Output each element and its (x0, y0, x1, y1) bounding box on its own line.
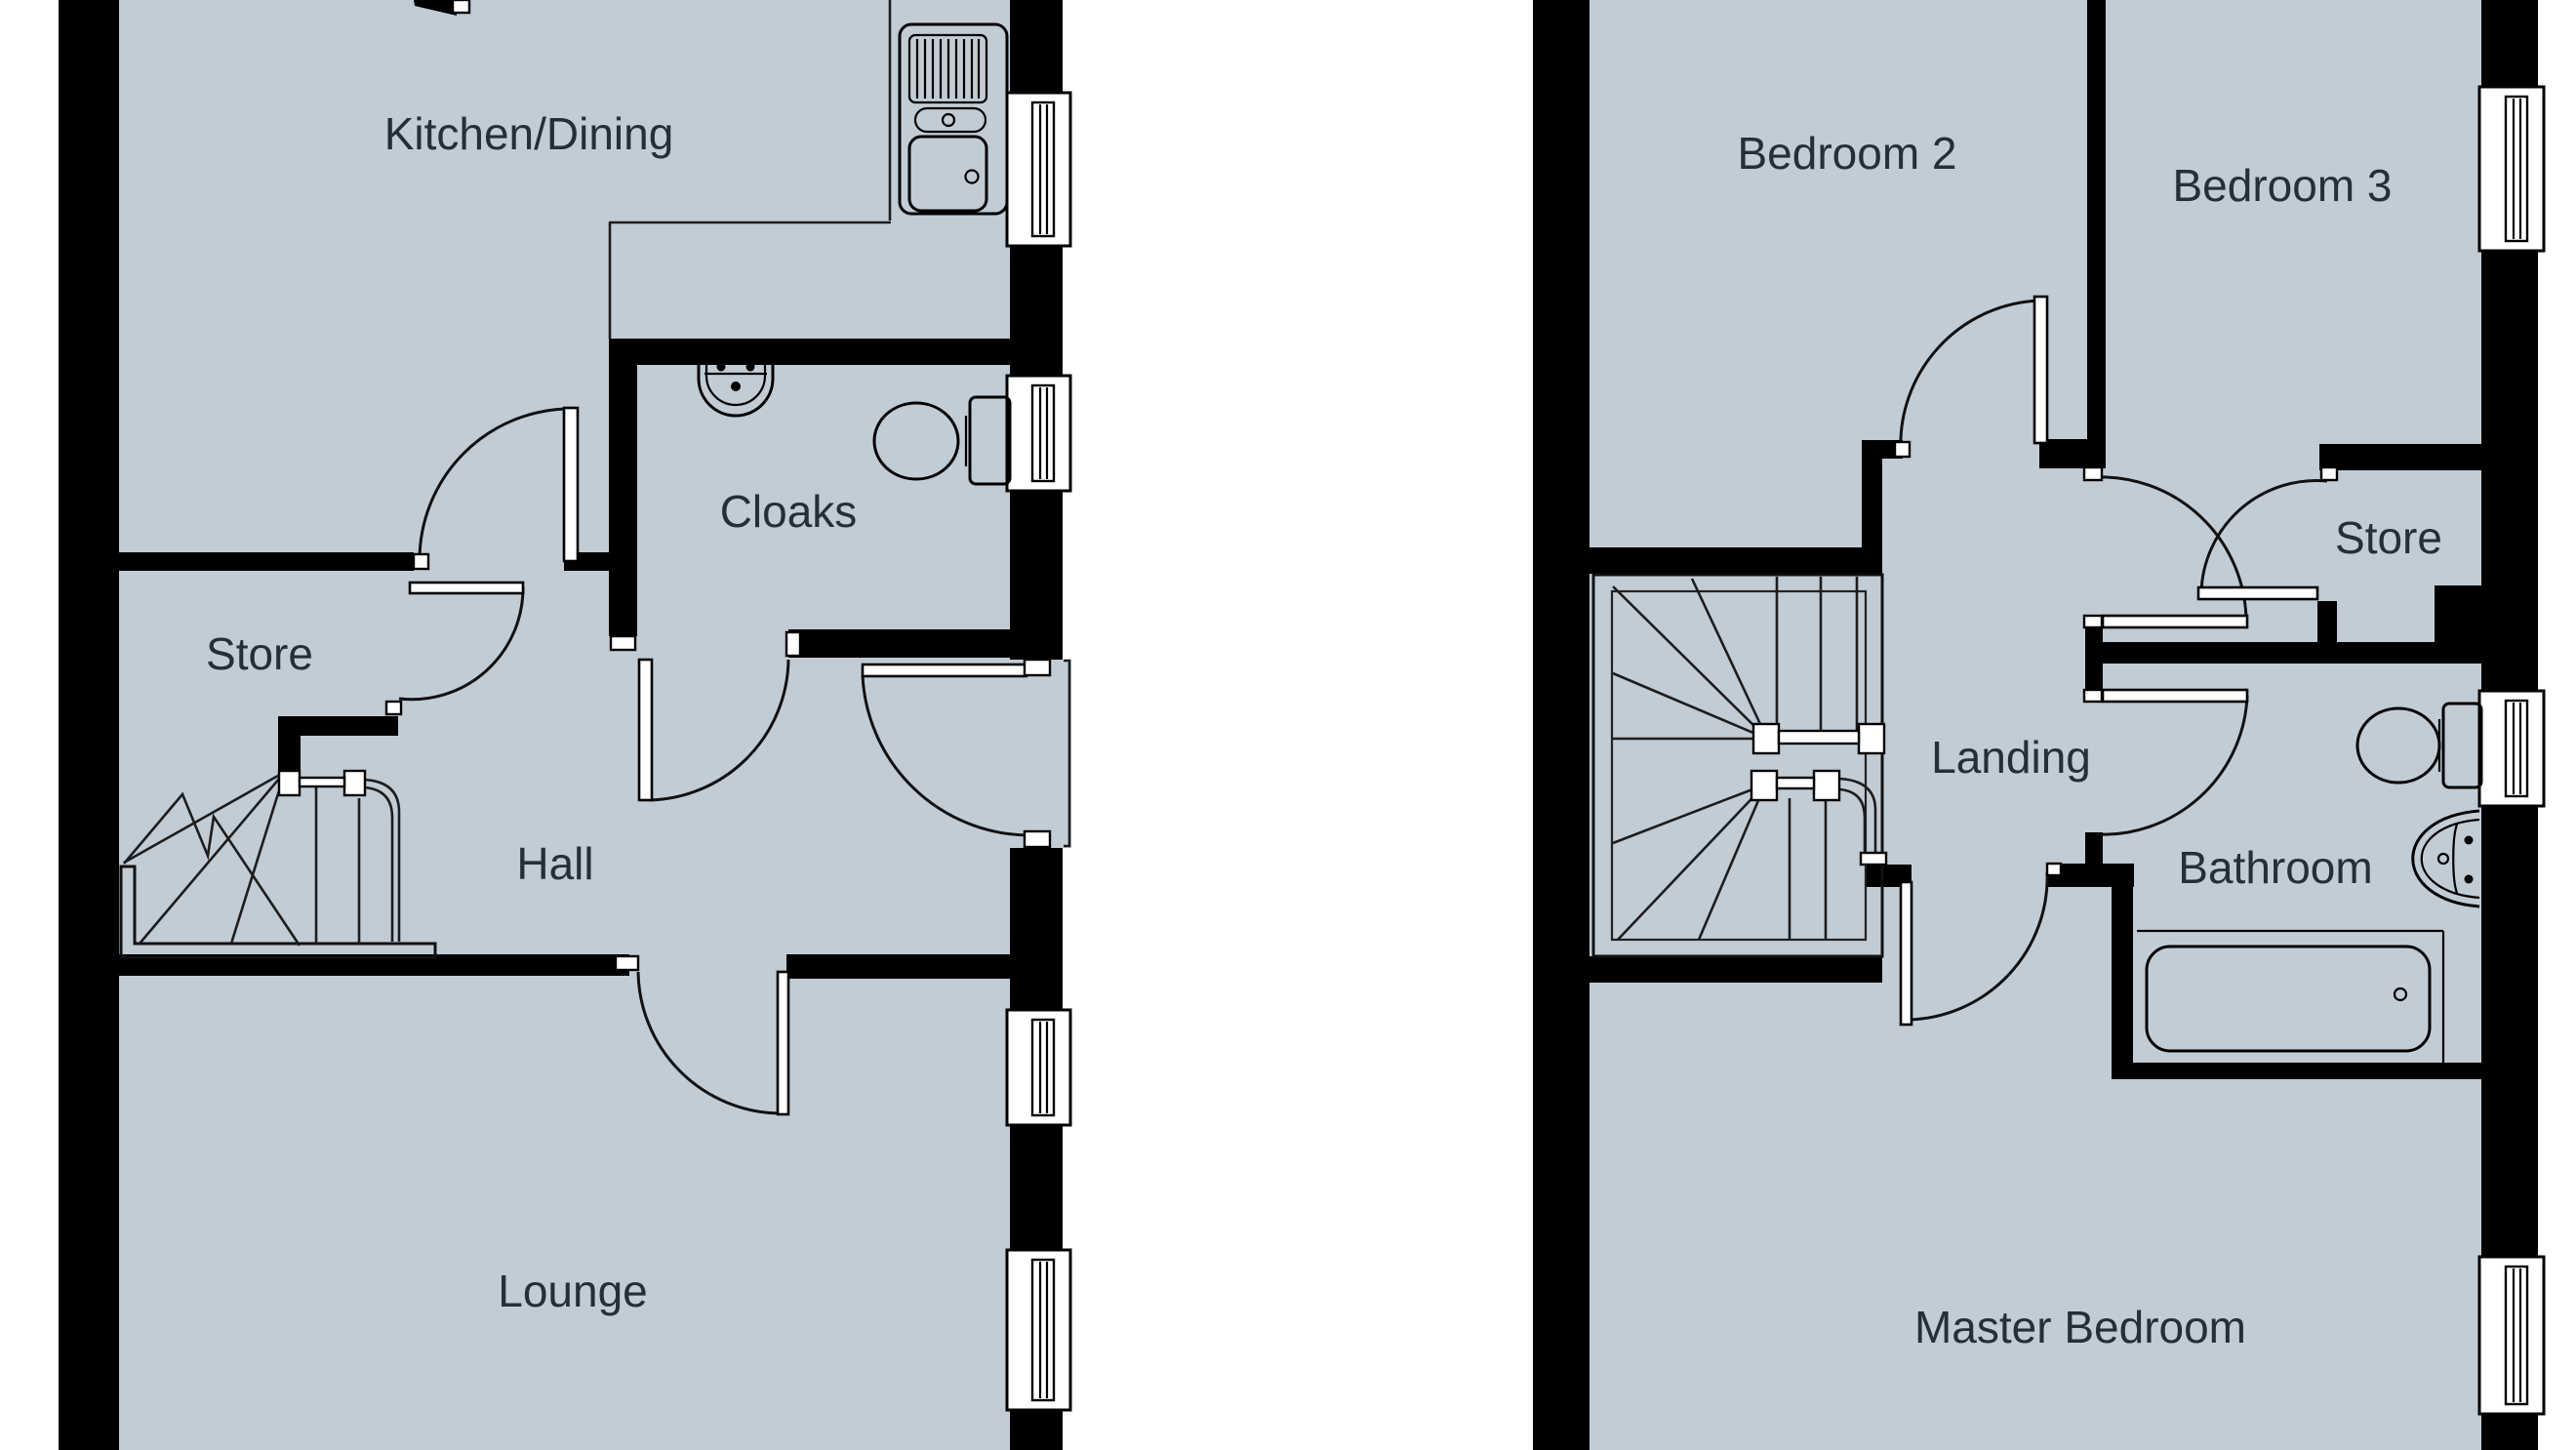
svg-text:Master Bedroom: Master Bedroom (1914, 1302, 2246, 1352)
svg-text:Store: Store (2335, 512, 2442, 563)
svg-text:Bedroom 3: Bedroom 3 (2172, 160, 2392, 211)
svg-text:Bedroom 2: Bedroom 2 (1737, 128, 1956, 179)
svg-text:Cloaks: Cloaks (720, 486, 858, 537)
svg-text:Bathroom: Bathroom (2178, 842, 2372, 893)
svg-text:Kitchen/Dining: Kitchen/Dining (384, 108, 674, 159)
svg-text:Lounge: Lounge (498, 1266, 648, 1316)
svg-text:Landing: Landing (1931, 732, 2091, 783)
svg-text:Hall: Hall (516, 838, 593, 889)
svg-text:Store: Store (206, 628, 313, 679)
